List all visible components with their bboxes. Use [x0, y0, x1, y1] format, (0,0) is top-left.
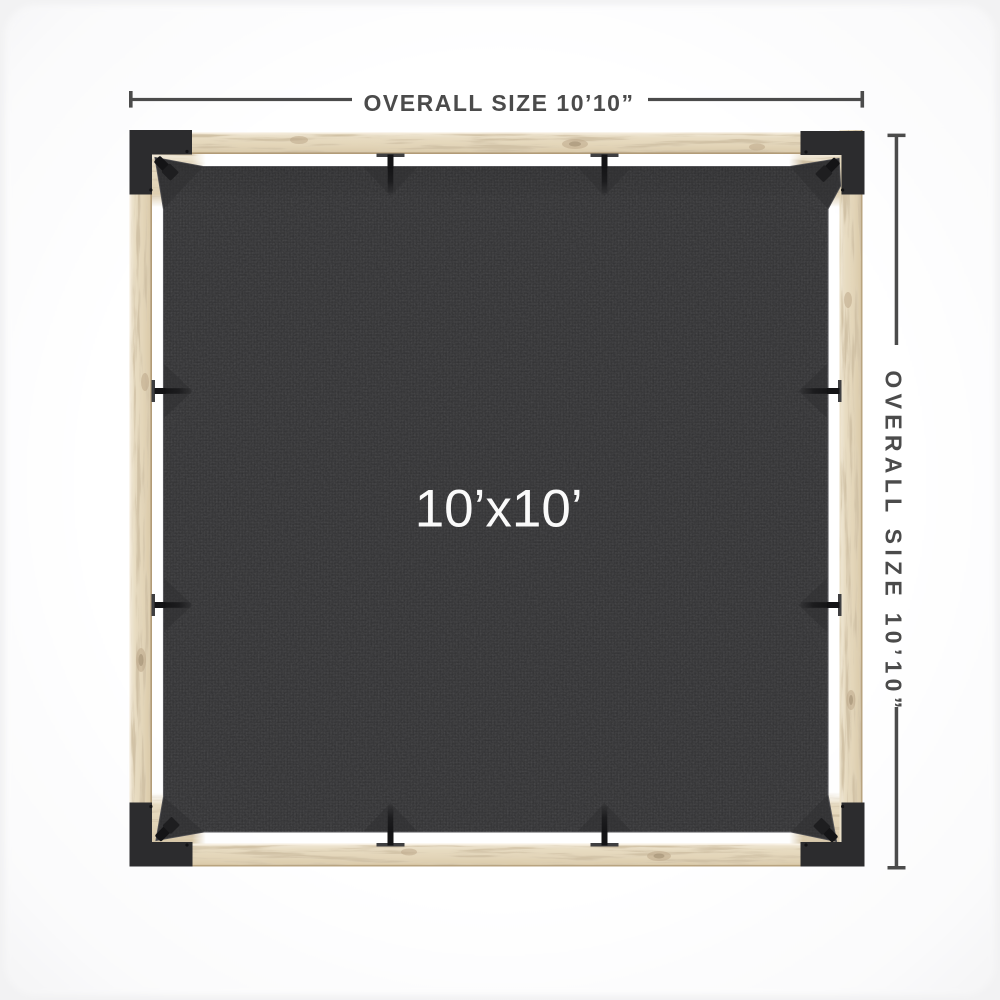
svg-text:OVERALL SIZE 10’10”: OVERALL SIZE 10’10” [880, 370, 906, 713]
svg-text:OVERALL SIZE 10’10”: OVERALL SIZE 10’10” [364, 90, 635, 116]
svg-text:10’x10’: 10’x10’ [415, 480, 583, 539]
